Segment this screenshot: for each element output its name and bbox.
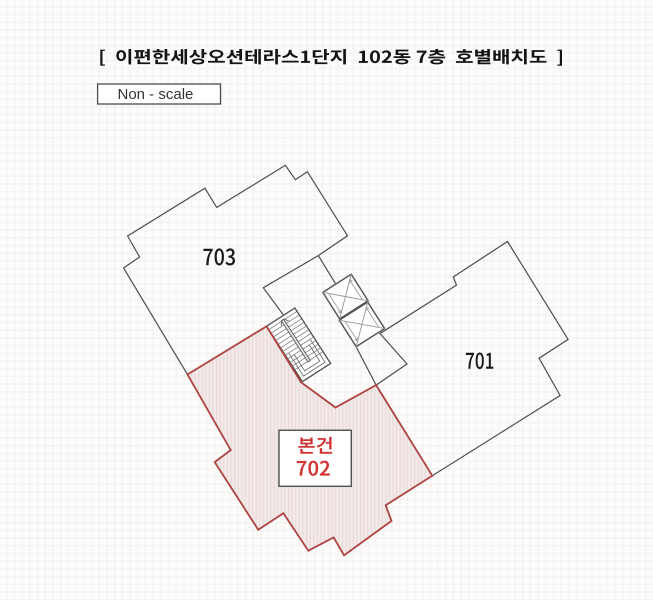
svg-text:Non - scale: Non - scale xyxy=(118,86,194,103)
